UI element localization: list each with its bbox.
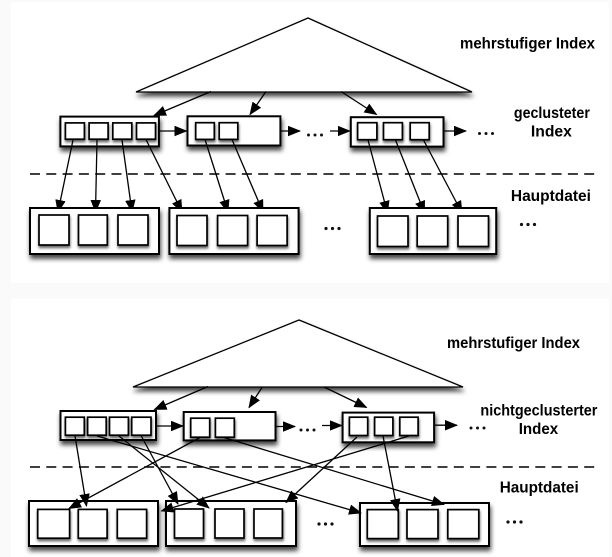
svg-text:Index: Index [531, 124, 572, 141]
svg-text:Hauptdatei: Hauptdatei [511, 188, 591, 205]
svg-text:Index: Index [519, 421, 559, 438]
svg-text:Hauptdatei: Hauptdatei [500, 480, 579, 497]
svg-text:geclusteter: geclusteter [514, 105, 590, 122]
svg-text:mehrstufiger Index: mehrstufiger Index [460, 36, 595, 53]
svg-text:mehrstufiger Index: mehrstufiger Index [447, 335, 580, 352]
svg-text:nichtgeclusterter: nichtgeclusterter [480, 402, 597, 419]
